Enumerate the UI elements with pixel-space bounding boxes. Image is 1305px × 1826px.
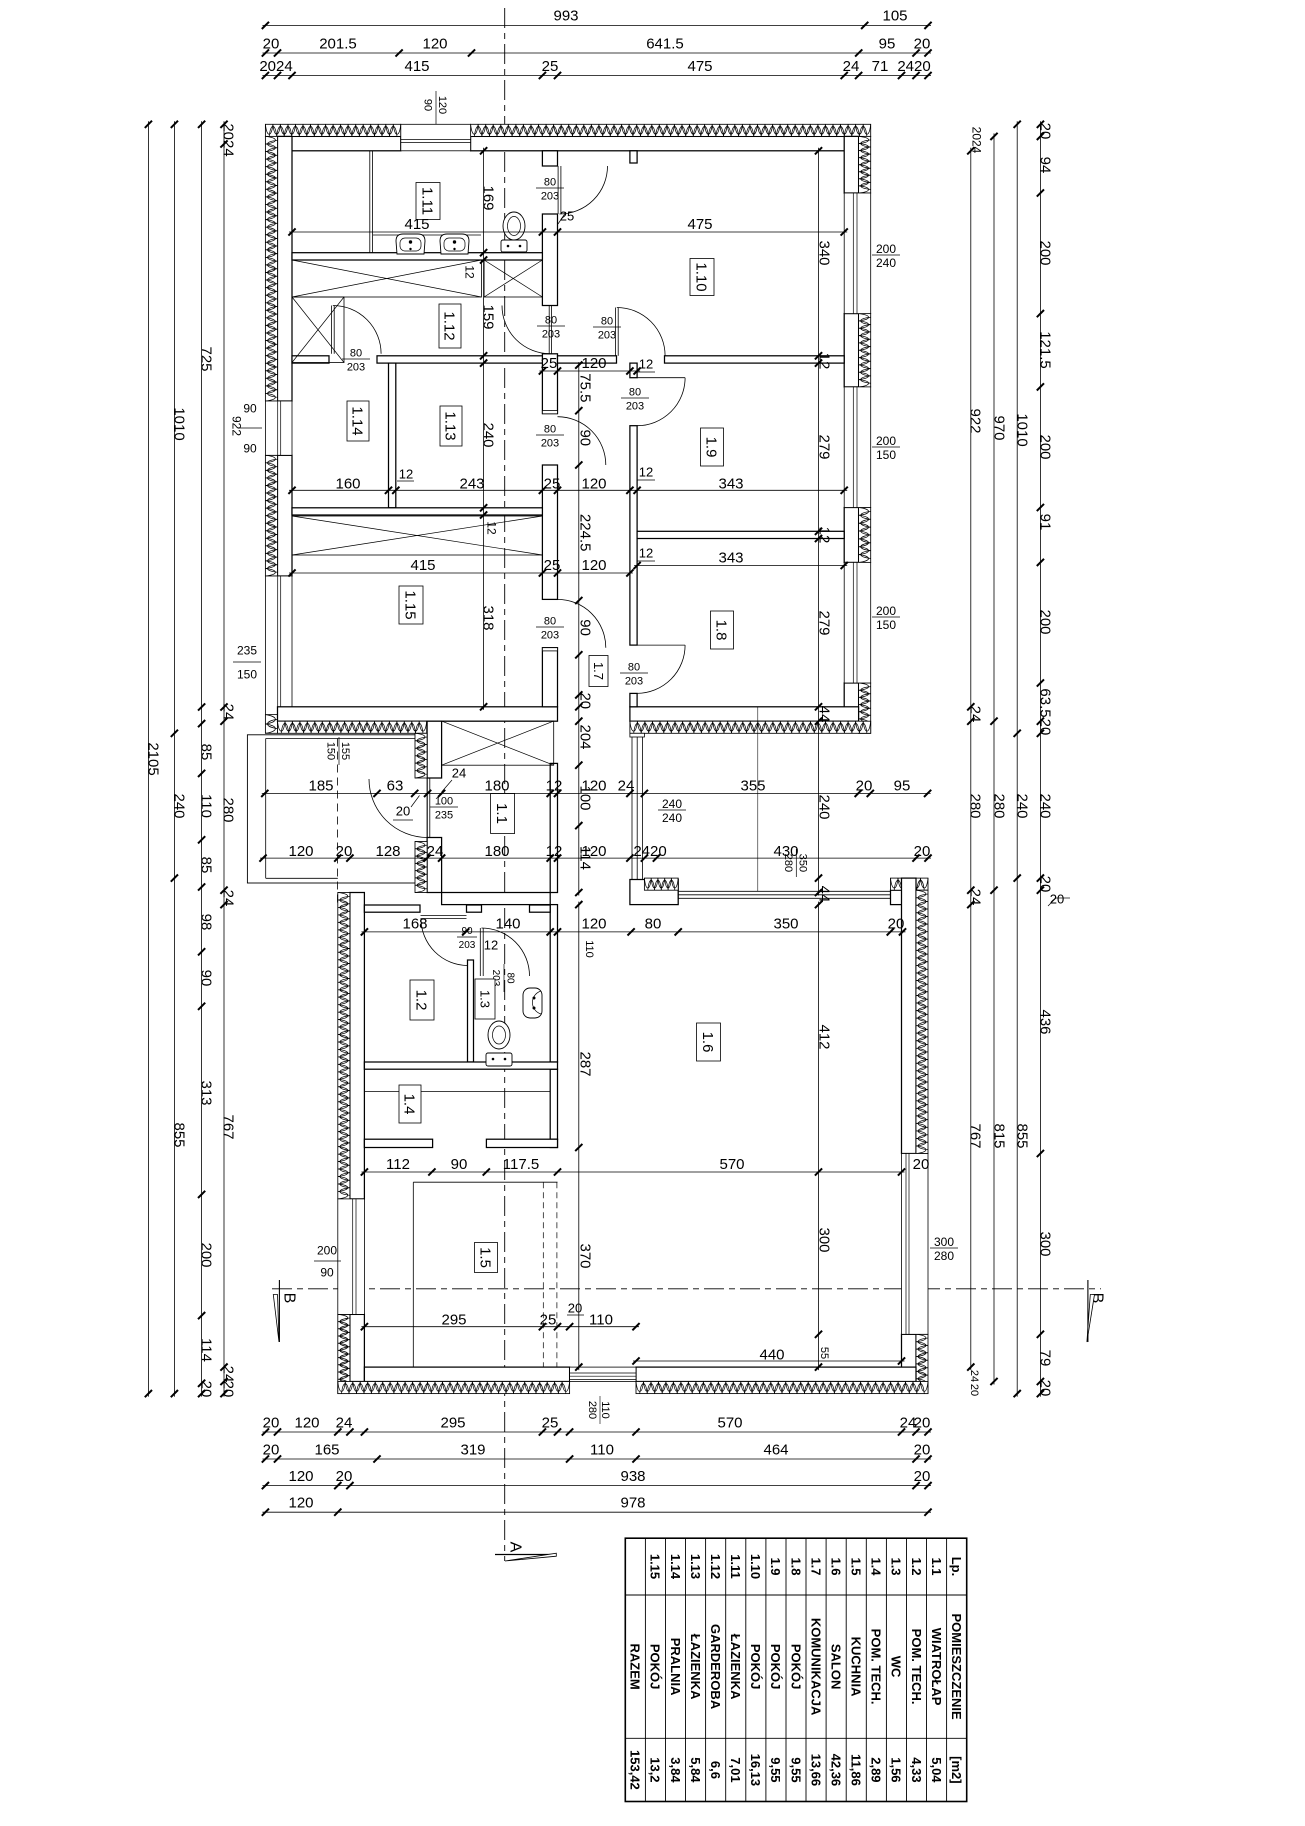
svg-text:ŁAZIENKA: ŁAZIENKA bbox=[688, 1634, 703, 1700]
svg-text:12: 12 bbox=[485, 521, 499, 535]
svg-text:1.8: 1.8 bbox=[788, 1557, 803, 1575]
svg-text:20: 20 bbox=[263, 1414, 280, 1431]
svg-text:1.8: 1.8 bbox=[713, 620, 730, 641]
svg-text:287: 287 bbox=[577, 1051, 594, 1076]
svg-text:24: 24 bbox=[967, 889, 984, 906]
svg-text:24: 24 bbox=[968, 1370, 980, 1382]
svg-text:80: 80 bbox=[629, 386, 641, 398]
svg-text:110: 110 bbox=[589, 1311, 613, 1328]
svg-text:295: 295 bbox=[440, 1414, 465, 1431]
svg-text:200: 200 bbox=[876, 604, 896, 618]
svg-text:20: 20 bbox=[1037, 1380, 1054, 1397]
svg-text:279: 279 bbox=[816, 434, 833, 459]
svg-text:KUCHNIA: KUCHNIA bbox=[849, 1637, 864, 1698]
svg-text:168: 168 bbox=[402, 915, 427, 932]
svg-text:12: 12 bbox=[463, 265, 477, 279]
svg-text:235: 235 bbox=[237, 643, 257, 657]
svg-text:120: 120 bbox=[581, 475, 606, 492]
svg-text:5,04: 5,04 bbox=[929, 1757, 944, 1783]
svg-text:140: 140 bbox=[495, 915, 520, 932]
svg-text:90: 90 bbox=[451, 1156, 468, 1173]
svg-text:3,84: 3,84 bbox=[668, 1757, 683, 1783]
svg-text:2024: 2024 bbox=[220, 123, 237, 156]
svg-text:4,33: 4,33 bbox=[909, 1757, 924, 1782]
svg-text:340: 340 bbox=[816, 240, 833, 265]
svg-text:464: 464 bbox=[763, 1441, 788, 1458]
svg-text:475: 475 bbox=[687, 216, 712, 233]
svg-text:436: 436 bbox=[1037, 1009, 1054, 1034]
svg-text:224.5: 224.5 bbox=[577, 514, 594, 552]
svg-text:938: 938 bbox=[620, 1468, 645, 1485]
svg-text:1.12: 1.12 bbox=[441, 311, 458, 340]
svg-text:203: 203 bbox=[625, 675, 643, 687]
svg-text:20: 20 bbox=[568, 1301, 582, 1316]
svg-text:370: 370 bbox=[577, 1243, 594, 1268]
svg-text:25: 25 bbox=[540, 1311, 557, 1328]
svg-text:112: 112 bbox=[386, 1156, 410, 1173]
svg-text:300: 300 bbox=[1037, 1231, 1054, 1256]
svg-text:[m2]: [m2] bbox=[949, 1756, 964, 1783]
svg-text:110: 110 bbox=[583, 940, 595, 958]
svg-text:A: A bbox=[506, 1542, 523, 1553]
svg-text:80: 80 bbox=[545, 314, 557, 326]
svg-text:1.6: 1.6 bbox=[699, 1032, 716, 1053]
svg-text:90: 90 bbox=[198, 970, 215, 987]
svg-text:2024: 2024 bbox=[259, 58, 292, 75]
svg-text:150: 150 bbox=[876, 448, 896, 462]
svg-text:318: 318 bbox=[480, 605, 497, 630]
svg-text:24: 24 bbox=[452, 766, 466, 781]
svg-text:1.14: 1.14 bbox=[349, 406, 366, 435]
svg-text:95: 95 bbox=[879, 35, 896, 52]
svg-text:POKÓJ: POKÓJ bbox=[748, 1644, 763, 1690]
svg-text:1.1: 1.1 bbox=[493, 803, 510, 824]
svg-text:120: 120 bbox=[581, 777, 606, 794]
svg-text:114: 114 bbox=[198, 1338, 215, 1362]
svg-text:855: 855 bbox=[1014, 1123, 1031, 1148]
svg-text:180: 180 bbox=[484, 777, 509, 794]
svg-text:2,89: 2,89 bbox=[869, 1757, 884, 1782]
svg-text:203: 203 bbox=[347, 361, 365, 373]
svg-text:641.5: 641.5 bbox=[646, 35, 684, 52]
svg-text:2420: 2420 bbox=[633, 843, 666, 860]
svg-text:280: 280 bbox=[934, 1249, 954, 1263]
svg-text:98: 98 bbox=[198, 914, 215, 931]
svg-text:235: 235 bbox=[435, 809, 453, 821]
svg-text:5,84: 5,84 bbox=[688, 1757, 703, 1783]
svg-text:12: 12 bbox=[546, 777, 563, 794]
svg-text:117.5: 117.5 bbox=[503, 1156, 539, 1173]
svg-text:12: 12 bbox=[639, 357, 653, 372]
svg-text:44: 44 bbox=[816, 706, 833, 723]
svg-text:20: 20 bbox=[914, 843, 931, 860]
svg-text:9,55: 9,55 bbox=[788, 1757, 803, 1782]
svg-text:169: 169 bbox=[480, 185, 497, 210]
svg-text:240: 240 bbox=[1014, 793, 1031, 818]
svg-text:GARDEROBA: GARDEROBA bbox=[708, 1624, 723, 1710]
svg-text:319: 319 bbox=[460, 1441, 485, 1458]
svg-text:295: 295 bbox=[441, 1311, 466, 1328]
svg-text:240: 240 bbox=[480, 422, 497, 447]
svg-text:1,56: 1,56 bbox=[889, 1757, 904, 1782]
svg-text:128: 128 bbox=[375, 843, 400, 860]
svg-text:922: 922 bbox=[230, 416, 244, 436]
svg-text:PRALNIA: PRALNIA bbox=[668, 1638, 683, 1696]
svg-text:80: 80 bbox=[645, 915, 662, 932]
svg-text:20: 20 bbox=[856, 777, 873, 794]
svg-text:20: 20 bbox=[220, 1381, 237, 1398]
svg-text:430: 430 bbox=[773, 843, 798, 860]
svg-text:105: 105 bbox=[882, 7, 907, 24]
svg-text:20: 20 bbox=[1050, 892, 1064, 907]
svg-text:203: 203 bbox=[459, 940, 476, 951]
svg-text:243: 243 bbox=[459, 475, 484, 492]
svg-text:11,86: 11,86 bbox=[849, 1754, 864, 1786]
svg-text:20: 20 bbox=[1037, 876, 1054, 893]
svg-text:1010: 1010 bbox=[171, 407, 188, 440]
svg-text:2105: 2105 bbox=[145, 742, 162, 775]
svg-text:42,36: 42,36 bbox=[829, 1754, 844, 1787]
svg-text:12: 12 bbox=[639, 465, 653, 480]
svg-text:203: 203 bbox=[541, 629, 559, 641]
svg-text:POKÓJ: POKÓJ bbox=[768, 1644, 783, 1690]
svg-text:20: 20 bbox=[914, 1441, 931, 1458]
svg-text:200: 200 bbox=[317, 1243, 337, 1257]
svg-text:570: 570 bbox=[719, 1156, 744, 1173]
svg-text:280: 280 bbox=[967, 793, 984, 818]
svg-text:240: 240 bbox=[662, 811, 682, 825]
svg-text:1.6: 1.6 bbox=[829, 1557, 844, 1575]
svg-text:200: 200 bbox=[876, 434, 896, 448]
svg-text:185: 185 bbox=[308, 777, 333, 794]
svg-text:1.10: 1.10 bbox=[748, 1554, 763, 1579]
svg-text:1.4: 1.4 bbox=[869, 1557, 884, 1576]
svg-text:25: 25 bbox=[542, 1414, 559, 1431]
svg-text:120: 120 bbox=[288, 1495, 313, 1512]
svg-text:815: 815 bbox=[991, 1123, 1008, 1148]
svg-text:240: 240 bbox=[876, 256, 896, 270]
svg-text:SALON: SALON bbox=[829, 1644, 844, 1690]
svg-text:9,55: 9,55 bbox=[768, 1757, 783, 1782]
svg-text:415: 415 bbox=[410, 557, 435, 574]
svg-text:85: 85 bbox=[198, 857, 215, 874]
svg-text:1.13: 1.13 bbox=[688, 1554, 703, 1579]
svg-text:1.3: 1.3 bbox=[477, 990, 492, 1008]
svg-text:1.4: 1.4 bbox=[401, 1094, 418, 1115]
svg-text:120: 120 bbox=[581, 915, 606, 932]
svg-text:71: 71 bbox=[872, 58, 889, 75]
svg-text:203: 203 bbox=[541, 437, 559, 449]
svg-text:343: 343 bbox=[718, 549, 743, 566]
svg-text:200: 200 bbox=[876, 242, 896, 256]
svg-text:1.1: 1.1 bbox=[929, 1557, 944, 1575]
svg-text:120: 120 bbox=[436, 96, 448, 114]
svg-text:978: 978 bbox=[620, 1495, 645, 1512]
svg-text:280: 280 bbox=[991, 793, 1008, 818]
svg-text:159: 159 bbox=[480, 304, 497, 329]
svg-text:150: 150 bbox=[237, 667, 257, 681]
svg-text:KOMUNIKACJA: KOMUNIKACJA bbox=[808, 1618, 823, 1716]
svg-text:80: 80 bbox=[504, 972, 515, 984]
svg-text:1010: 1010 bbox=[1014, 413, 1031, 446]
svg-text:280: 280 bbox=[586, 1401, 598, 1419]
svg-text:120: 120 bbox=[581, 843, 606, 860]
svg-text:95: 95 bbox=[894, 777, 911, 794]
svg-text:12: 12 bbox=[639, 546, 653, 561]
svg-text:153,42: 153,42 bbox=[628, 1750, 643, 1790]
svg-text:20: 20 bbox=[914, 1414, 931, 1431]
svg-text:80: 80 bbox=[601, 315, 613, 327]
svg-text:279: 279 bbox=[816, 610, 833, 635]
svg-text:120: 120 bbox=[294, 1414, 319, 1431]
svg-text:20: 20 bbox=[913, 1156, 930, 1173]
svg-text:200: 200 bbox=[1037, 434, 1054, 459]
svg-text:55: 55 bbox=[818, 1347, 830, 1359]
svg-text:90: 90 bbox=[243, 441, 257, 455]
svg-text:POM. TECH.: POM. TECH. bbox=[909, 1629, 924, 1705]
svg-text:WC: WC bbox=[889, 1656, 904, 1678]
svg-text:415: 415 bbox=[404, 58, 429, 75]
svg-text:1.11: 1.11 bbox=[728, 1554, 743, 1579]
svg-text:85: 85 bbox=[198, 744, 215, 761]
svg-text:150: 150 bbox=[325, 742, 337, 760]
svg-text:80: 80 bbox=[544, 615, 556, 627]
svg-text:ŁAZIENKA: ŁAZIENKA bbox=[728, 1634, 743, 1700]
svg-text:300: 300 bbox=[934, 1235, 954, 1249]
svg-text:90: 90 bbox=[243, 401, 257, 415]
svg-text:24: 24 bbox=[336, 1414, 353, 1431]
svg-text:201.5: 201.5 bbox=[319, 35, 357, 52]
svg-text:1.13: 1.13 bbox=[442, 411, 459, 440]
svg-text:94: 94 bbox=[1037, 157, 1054, 174]
svg-text:1.11: 1.11 bbox=[419, 187, 436, 215]
svg-text:120: 120 bbox=[288, 1468, 313, 1485]
svg-text:12: 12 bbox=[546, 843, 563, 860]
svg-text:13,66: 13,66 bbox=[808, 1754, 823, 1787]
svg-text:20: 20 bbox=[914, 35, 931, 52]
svg-text:993: 993 bbox=[553, 7, 578, 24]
svg-text:203: 203 bbox=[626, 400, 644, 412]
svg-text:200: 200 bbox=[1037, 240, 1054, 265]
svg-text:1.9: 1.9 bbox=[703, 437, 720, 458]
svg-text:767: 767 bbox=[220, 1114, 237, 1139]
svg-text:7,01: 7,01 bbox=[728, 1757, 743, 1782]
svg-text:120: 120 bbox=[581, 355, 606, 372]
svg-text:121.5: 121.5 bbox=[1037, 331, 1054, 369]
svg-text:1.5: 1.5 bbox=[849, 1557, 864, 1575]
svg-text:155: 155 bbox=[339, 742, 351, 760]
svg-text:B: B bbox=[280, 1293, 297, 1304]
svg-text:1.7: 1.7 bbox=[808, 1557, 823, 1575]
svg-text:180: 180 bbox=[484, 843, 509, 860]
svg-text:570: 570 bbox=[717, 1414, 742, 1431]
svg-text:240: 240 bbox=[662, 797, 682, 811]
svg-text:20: 20 bbox=[888, 915, 905, 932]
svg-text:240: 240 bbox=[171, 793, 188, 818]
svg-text:200: 200 bbox=[1037, 609, 1054, 634]
svg-text:90: 90 bbox=[320, 1265, 334, 1279]
svg-text:970: 970 bbox=[991, 415, 1008, 440]
svg-text:POM. TECH.: POM. TECH. bbox=[869, 1629, 884, 1705]
svg-text:13,2: 13,2 bbox=[648, 1757, 663, 1782]
svg-text:120: 120 bbox=[288, 843, 313, 860]
svg-text:1.14: 1.14 bbox=[668, 1554, 683, 1580]
svg-text:1.7: 1.7 bbox=[591, 662, 606, 680]
svg-text:313: 313 bbox=[198, 1080, 215, 1105]
svg-text:75.5: 75.5 bbox=[577, 373, 594, 402]
svg-text:240: 240 bbox=[1037, 793, 1054, 818]
svg-text:25: 25 bbox=[544, 557, 561, 574]
svg-text:1.15: 1.15 bbox=[648, 1554, 663, 1579]
svg-text:1.12: 1.12 bbox=[708, 1554, 723, 1579]
svg-text:20: 20 bbox=[396, 804, 410, 819]
svg-text:12: 12 bbox=[816, 527, 833, 544]
svg-text:63: 63 bbox=[387, 777, 404, 794]
svg-text:25: 25 bbox=[541, 355, 558, 372]
svg-text:110: 110 bbox=[198, 794, 215, 818]
svg-text:922: 922 bbox=[967, 408, 984, 433]
svg-text:90: 90 bbox=[577, 429, 594, 446]
svg-text:25: 25 bbox=[542, 58, 559, 75]
svg-text:1.2: 1.2 bbox=[909, 1557, 924, 1575]
svg-text:80: 80 bbox=[544, 423, 556, 435]
svg-text:280: 280 bbox=[220, 797, 237, 822]
svg-text:20: 20 bbox=[1037, 123, 1054, 140]
svg-text:20: 20 bbox=[336, 1468, 353, 1485]
svg-text:90: 90 bbox=[577, 619, 594, 636]
svg-text:1.3: 1.3 bbox=[889, 1557, 904, 1575]
svg-text:24: 24 bbox=[843, 58, 860, 75]
svg-text:415: 415 bbox=[404, 216, 429, 233]
svg-text:150: 150 bbox=[876, 618, 896, 632]
svg-text:63.5: 63.5 bbox=[1037, 688, 1054, 717]
svg-text:20: 20 bbox=[914, 1468, 931, 1485]
svg-text:12: 12 bbox=[399, 467, 413, 482]
svg-text:12: 12 bbox=[816, 353, 833, 370]
svg-text:20: 20 bbox=[577, 692, 594, 709]
svg-text:POKÓJ: POKÓJ bbox=[788, 1644, 803, 1690]
svg-text:20: 20 bbox=[263, 35, 280, 52]
svg-text:343: 343 bbox=[718, 475, 743, 492]
svg-text:203: 203 bbox=[541, 190, 559, 202]
svg-text:1.9: 1.9 bbox=[768, 1557, 783, 1575]
svg-text:25: 25 bbox=[544, 475, 561, 492]
svg-text:POKÓJ: POKÓJ bbox=[648, 1644, 663, 1690]
svg-text:44: 44 bbox=[816, 886, 833, 903]
svg-text:80: 80 bbox=[628, 661, 640, 673]
svg-text:355: 355 bbox=[740, 777, 765, 794]
svg-text:WIATROŁAP: WIATROŁAP bbox=[929, 1628, 944, 1706]
svg-text:100: 100 bbox=[435, 795, 453, 807]
svg-text:110: 110 bbox=[590, 1441, 614, 1458]
svg-text:1.2: 1.2 bbox=[413, 990, 430, 1011]
svg-text:1.10: 1.10 bbox=[693, 262, 710, 291]
svg-text:165: 165 bbox=[314, 1441, 339, 1458]
svg-text:25: 25 bbox=[560, 209, 574, 224]
svg-text:855: 855 bbox=[171, 1122, 188, 1147]
svg-text:160: 160 bbox=[335, 475, 360, 492]
svg-text:20: 20 bbox=[198, 1381, 215, 1398]
svg-text:475: 475 bbox=[687, 58, 712, 75]
svg-text:79: 79 bbox=[1037, 1350, 1054, 1367]
svg-text:80: 80 bbox=[350, 347, 362, 359]
svg-text:1.5: 1.5 bbox=[477, 1247, 494, 1268]
svg-text:2420: 2420 bbox=[897, 58, 930, 75]
svg-text:RAZEM: RAZEM bbox=[628, 1643, 643, 1689]
svg-text:16,13: 16,13 bbox=[748, 1754, 763, 1787]
svg-text:240: 240 bbox=[816, 794, 833, 819]
svg-text:767: 767 bbox=[967, 1123, 984, 1148]
svg-text:6,6: 6,6 bbox=[708, 1761, 723, 1779]
svg-text:1.15: 1.15 bbox=[402, 590, 419, 619]
svg-text:120: 120 bbox=[581, 557, 606, 574]
svg-text:24: 24 bbox=[220, 704, 237, 721]
svg-text:203: 203 bbox=[598, 329, 616, 341]
svg-text:204: 204 bbox=[577, 724, 594, 749]
svg-text:90: 90 bbox=[422, 99, 434, 111]
svg-text:80: 80 bbox=[544, 176, 556, 188]
svg-text:300: 300 bbox=[816, 1227, 833, 1252]
svg-text:2024: 2024 bbox=[970, 127, 984, 154]
svg-text:24: 24 bbox=[967, 706, 984, 723]
svg-text:20: 20 bbox=[968, 1384, 980, 1396]
svg-text:20: 20 bbox=[336, 843, 353, 860]
svg-text:POMIESZCZENIE: POMIESZCZENIE bbox=[949, 1614, 964, 1721]
svg-text:725: 725 bbox=[198, 346, 215, 371]
svg-text:110: 110 bbox=[599, 1401, 611, 1419]
svg-text:203: 203 bbox=[542, 328, 560, 340]
svg-text:350: 350 bbox=[773, 915, 798, 932]
svg-text:24: 24 bbox=[427, 843, 444, 860]
svg-text:120: 120 bbox=[422, 35, 447, 52]
svg-text:412: 412 bbox=[816, 1024, 833, 1049]
svg-text:Lp.: Lp. bbox=[949, 1557, 964, 1577]
svg-text:20: 20 bbox=[1037, 719, 1054, 736]
svg-text:12: 12 bbox=[484, 938, 498, 953]
svg-text:20: 20 bbox=[263, 1441, 280, 1458]
svg-text:24: 24 bbox=[220, 890, 237, 907]
svg-text:91: 91 bbox=[1037, 514, 1054, 531]
svg-text:24: 24 bbox=[618, 777, 635, 794]
svg-text:200: 200 bbox=[198, 1242, 215, 1267]
